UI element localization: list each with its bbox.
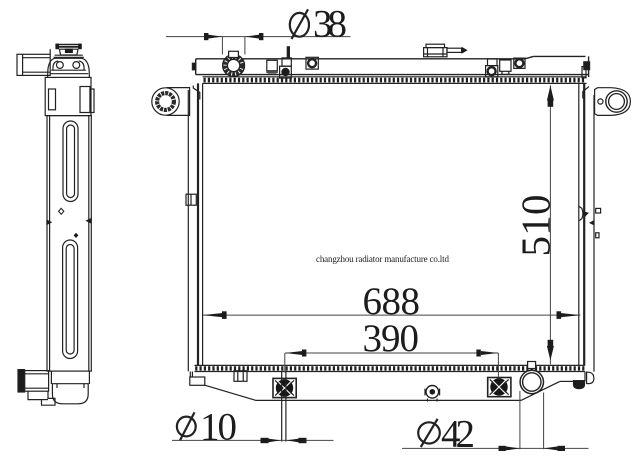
svg-text:10: 10 — [200, 405, 237, 448]
svg-text:38: 38 — [313, 2, 347, 45]
svg-text:510: 510 — [512, 195, 558, 257]
svg-text:changzhou radiator manufacture: changzhou radiator manufacture co.ltd — [316, 254, 450, 264]
svg-text:42: 42 — [441, 412, 475, 455]
svg-text:390: 390 — [363, 317, 420, 360]
